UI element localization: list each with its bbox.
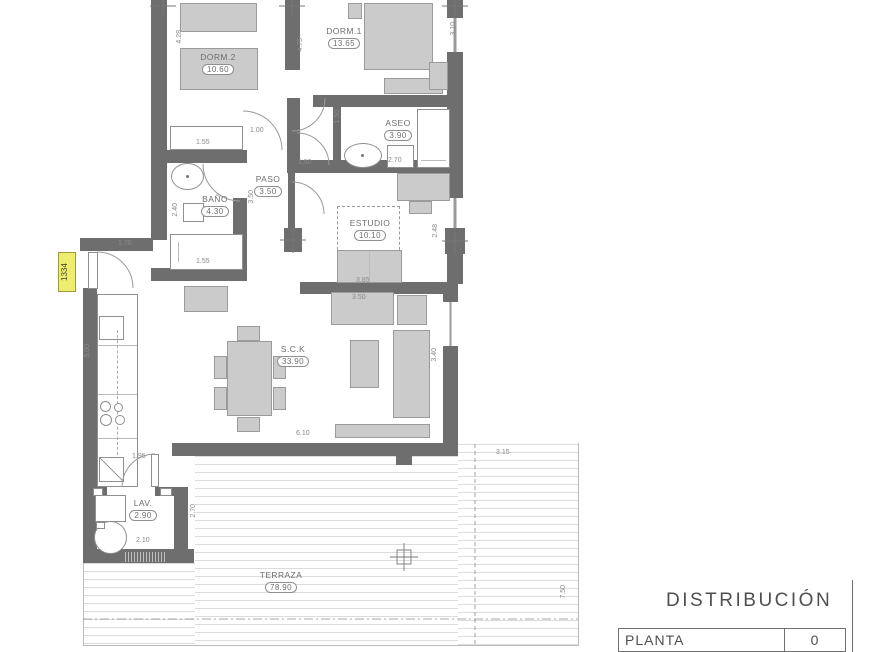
room-name: ESTUDIO [340, 218, 400, 228]
shower-line [421, 160, 446, 161]
basin-drain [186, 175, 189, 178]
room-area-badge: 78.90 [265, 582, 297, 593]
room-label-terraza: TERRAZA 78.90 [249, 570, 313, 593]
sideboard [184, 286, 228, 312]
room-name: PASO [244, 174, 292, 184]
unit-number-tag: 1334 [58, 252, 76, 292]
room-name: ASEO [372, 118, 424, 128]
coffee-table [350, 340, 379, 388]
dim-label: 2.70 [388, 157, 402, 164]
dim-label: 1.95 [132, 453, 146, 460]
dim-label: 1.00 [250, 127, 264, 134]
kitchen-sink [99, 457, 124, 482]
room-area-badge: 10.60 [202, 64, 234, 75]
hob-burner [100, 401, 111, 412]
dim-label: 3.15 [496, 449, 510, 456]
room-label-bano: BAÑO 4.30 [190, 194, 240, 217]
dim-label: 3.50 [352, 294, 366, 301]
room-area-badge: 3.90 [384, 130, 411, 141]
chair [237, 417, 260, 432]
dim-label: 2.40 [172, 203, 179, 217]
dim-label: 2.48 [432, 224, 439, 238]
hob-burner [114, 403, 123, 412]
laundry-door-leaf [151, 454, 159, 487]
wall [172, 443, 458, 456]
title-block-row-label: PLANTA [619, 629, 785, 651]
wall [80, 238, 153, 251]
room-area-badge: 2.90 [129, 510, 156, 521]
title-block-row-value: 0 [785, 629, 845, 651]
dim-label: 4.28 [176, 30, 183, 44]
dim-label: 1.55 [196, 139, 210, 146]
room-label-dorm2: DORM.2 10.60 [190, 52, 246, 75]
terrace-door-post [396, 456, 412, 465]
room-name: LAV. [118, 498, 168, 508]
title-block-table: PLANTA 0 [618, 628, 846, 652]
bed [364, 3, 433, 70]
wall [313, 95, 458, 107]
terrace-border [578, 443, 579, 645]
room-area-badge: 3.50 [254, 186, 281, 197]
floorplan-sheet: 1334 DORM.2 10.60 DORM.1 13.65 ASEO 3.90… [0, 0, 870, 652]
wall [447, 0, 463, 18]
sheet-title: DISTRIBUCIÓN [666, 590, 832, 612]
dim-label: 3.10 [450, 22, 457, 36]
terrace-border [83, 645, 579, 646]
room-name: S.C.K [266, 344, 320, 354]
wall [447, 254, 463, 284]
dim-label: 7.50 [560, 585, 567, 599]
chair [214, 356, 227, 379]
window [447, 198, 463, 228]
room-label-sck: S.C.K 33.90 [266, 344, 320, 367]
wardrobe [170, 126, 243, 150]
window [443, 302, 458, 346]
terrace-deck [195, 456, 458, 645]
dim-label: 4.75 [297, 38, 304, 52]
wall [151, 0, 167, 240]
chair [214, 387, 227, 410]
wall-column [445, 228, 465, 254]
wall [151, 150, 247, 163]
room-label-estudio: ESTUDIO 10.10 [340, 218, 400, 241]
wall-column [284, 228, 302, 252]
paso-door-arc [292, 182, 324, 214]
terrace-deck [458, 444, 578, 645]
room-name: TERRAZA [249, 570, 313, 580]
terrace-deck [83, 563, 195, 645]
dim-label: 5.00 [84, 344, 91, 358]
vent-grille [125, 552, 167, 562]
room-area-badge: 4.30 [201, 206, 228, 217]
hob-burner [100, 414, 112, 426]
dim-label: 6.10 [296, 430, 310, 437]
room-name: BAÑO [190, 194, 240, 204]
tv-bench [335, 424, 430, 438]
washer-panel [96, 522, 105, 529]
room-label-aseo: ASEO 3.90 [372, 118, 424, 141]
chair [409, 201, 432, 214]
side-table [397, 295, 427, 325]
door-post [160, 488, 172, 496]
desk [397, 173, 450, 201]
basin-drain [361, 154, 364, 157]
dim-label: 1.50 [334, 110, 341, 124]
dim-label: 1.50 [298, 159, 312, 166]
wall [443, 346, 458, 455]
bed [180, 3, 257, 32]
counter-dash-line [117, 330, 118, 455]
room-label-lav: LAV. 2.90 [118, 498, 168, 521]
room-name: DORM.2 [190, 52, 246, 62]
room-area-badge: 13.65 [328, 38, 360, 49]
dim-label: 2.10 [136, 537, 150, 544]
dim-label: 3.85 [356, 277, 370, 284]
wall [285, 0, 300, 70]
entry-door-arc [97, 252, 133, 288]
chair [237, 326, 260, 341]
sofa [393, 330, 430, 418]
dim-label: 3.40 [431, 348, 438, 362]
bathtub-line [178, 242, 179, 262]
dim-label: 1.55 [196, 258, 210, 265]
fridge [99, 316, 124, 340]
room-label-dorm1: DORM.1 13.65 [315, 26, 373, 49]
dim-label: 2.70 [190, 504, 197, 518]
entry-door-leaf [88, 252, 98, 289]
room-name: DORM.1 [315, 26, 373, 36]
sheet-border [852, 580, 853, 652]
chair [273, 387, 286, 410]
closet [429, 62, 448, 90]
room-area-badge: 10.10 [354, 230, 386, 241]
nightstand [348, 3, 362, 19]
wall [174, 487, 188, 563]
dim-label: 3.50 [248, 190, 255, 204]
terrace-border [83, 563, 84, 645]
hob-burner [115, 415, 125, 425]
wall [287, 98, 300, 160]
room-area-badge: 33.90 [277, 356, 309, 367]
dim-label: 1.70 [118, 240, 132, 247]
